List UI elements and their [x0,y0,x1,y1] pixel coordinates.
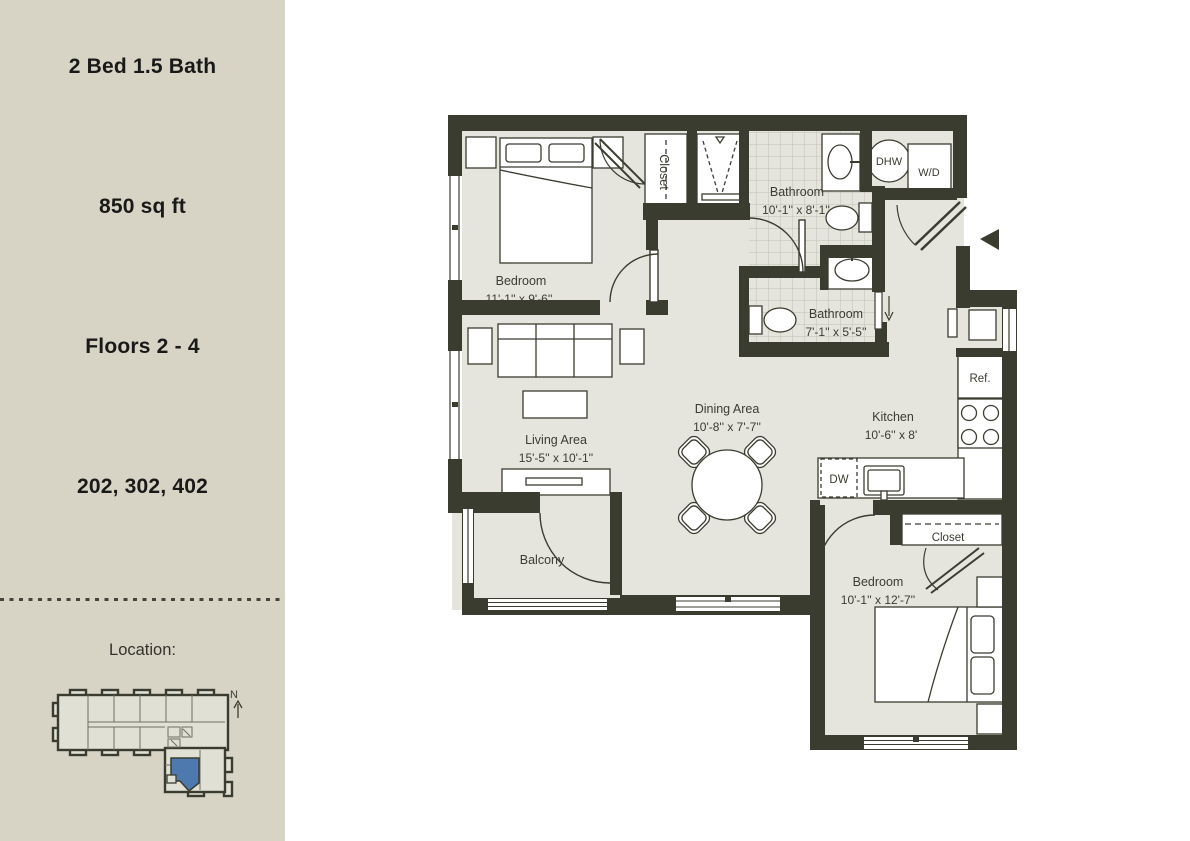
bathroom-1-label: Bathroom [770,185,824,199]
bathroom-2-label: Bathroom [809,307,863,321]
dining-table [692,450,762,520]
nightstand-1b [593,137,623,168]
living-window [447,351,462,459]
balcony-railing [488,599,607,610]
washer-dryer-label: W/D [918,167,939,179]
side-table-left [468,328,492,364]
dining-label: Dining Area [695,402,760,416]
bathroom-1-sink [822,134,860,191]
balcony-side-window [463,509,473,583]
kitchen-sink [864,466,904,500]
dhw-label: DHW [876,156,903,168]
bedroom-1-label: Bedroom [496,274,547,288]
floor-plan: Bedroom 11'-1'' x 9'-6'' Closet Bathroom… [0,0,1190,841]
shower [697,134,743,206]
living-dims: 15'-5'' x 10'-1'' [519,451,593,465]
nightstand-1a [466,137,496,168]
closet-1-label: Closet [657,154,671,190]
coffee-table [523,391,587,418]
kitchen-dims: 10'-6'' x 8' [865,428,918,442]
balcony-label: Balcony [520,553,565,567]
niche-window [1003,309,1016,351]
bedroom-1-dims: 11'-1'' x 9'-6'' [486,292,553,306]
stove [958,399,1003,448]
tv-console [502,469,610,495]
bedroom-2-window [864,737,968,749]
sofa [498,324,612,377]
kitchen-label: Kitchen [872,410,914,424]
floorplan-sheet: 2 Bed 1.5 Bath 850 sq ft Floors 2 - 4 20… [0,0,1190,841]
dining-window [676,597,780,611]
dishwasher-label: DW [829,474,848,486]
bathroom-1-dims: 10'-1'' x 8'-1'' [762,203,830,217]
dining-dims: 10'-8'' x 7'-7'' [693,420,761,434]
bathroom-2-toilet [749,306,796,334]
closet-2-label: Closet [932,532,965,544]
bathroom-2-dims: 7'-1'' x 5'-5'' [805,325,866,339]
bed-1 [500,138,592,263]
living-label: Living Area [525,433,587,447]
bedroom-2-dims: 10'-1'' x 12'-7'' [841,593,915,607]
refrigerator-label: Ref. [969,373,990,385]
side-table-right [620,329,644,364]
niche-cabinet [969,310,996,340]
nightstand-2a [977,577,1003,607]
bedroom-1-window [447,176,462,280]
bed-2 [875,607,1003,702]
nightstand-2b [977,704,1003,734]
bedroom-2-label: Bedroom [853,575,904,589]
entry-arrow-icon [980,229,999,250]
hall-shelf [948,309,957,337]
